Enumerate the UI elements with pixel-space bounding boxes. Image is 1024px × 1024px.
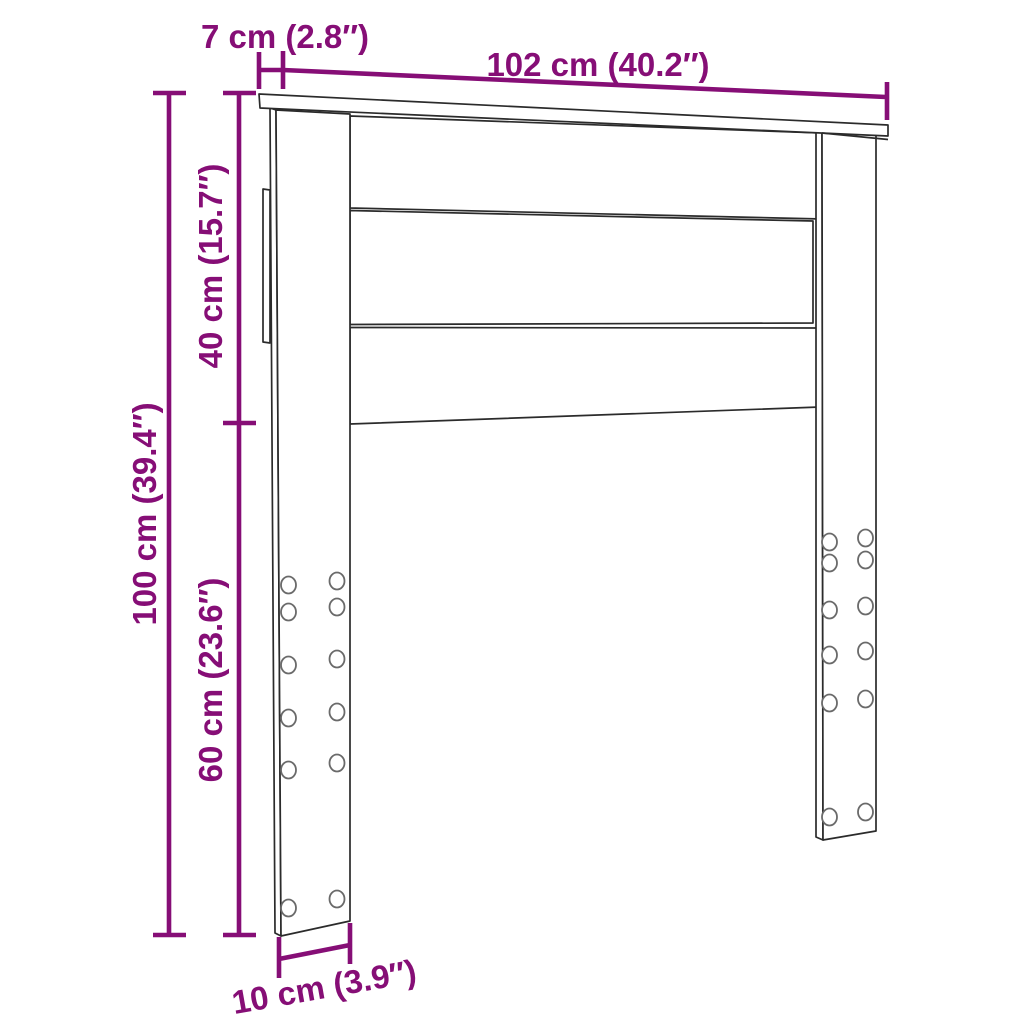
- dimension-label-leg-height: 60 cm (23.6″): [192, 578, 229, 783]
- dimension-label-width: 102 cm (40.2″): [486, 46, 709, 83]
- mounting-hole: [281, 762, 296, 779]
- dimension-label-leg-depth: 10 cm (3.9″): [229, 952, 419, 1021]
- dimension-leg-depth: 10 cm (3.9″): [229, 923, 419, 1021]
- right-leg: [816, 131, 876, 840]
- mounting-hole: [281, 657, 296, 674]
- dimension-shelf-depth-lines: [257, 51, 285, 89]
- mounting-hole: [858, 598, 873, 615]
- mounting-hole: [858, 804, 873, 821]
- dimension-panel-height: 40 cm (15.7″): [192, 93, 256, 423]
- mounting-hole: [822, 602, 837, 619]
- mounting-hole: [281, 604, 296, 621]
- right-leg-front-face: [822, 133, 876, 840]
- dimension-label-panel-height: 40 cm (15.7″): [192, 164, 229, 369]
- mounting-hole: [858, 643, 873, 660]
- slat-top: [350, 116, 822, 219]
- mounting-hole: [281, 577, 296, 594]
- headboard-outline: [259, 94, 888, 936]
- mounting-hole: [858, 530, 873, 547]
- mounting-hole: [281, 710, 296, 727]
- slat-middle: [350, 211, 813, 325]
- headboard-slats: [350, 116, 822, 424]
- mounting-hole: [330, 599, 345, 616]
- left-leg-front-face: [276, 110, 350, 936]
- dimension-leg-height: 60 cm (23.6″): [192, 423, 256, 935]
- wall-rail: [263, 189, 270, 343]
- dimension-label-shelf-depth: 7 cm (2.8″): [201, 18, 369, 55]
- dimension-shelf-depth: 7 cm (2.8″): [201, 18, 369, 89]
- mounting-hole: [281, 900, 296, 917]
- mounting-hole: [822, 647, 837, 664]
- mounting-hole: [858, 552, 873, 569]
- mounting-hole: [330, 651, 345, 668]
- mounting-hole: [822, 555, 837, 572]
- diagram-page: 7 cm (2.8″) 102 cm (40.2″) 100 cm (39.4″…: [0, 0, 1024, 1024]
- mounting-hole: [822, 534, 837, 551]
- dimension-total-height: 100 cm (39.4″): [126, 93, 186, 935]
- mounting-hole: [330, 891, 345, 908]
- mounting-hole: [330, 704, 345, 721]
- mounting-hole: [330, 573, 345, 590]
- mounting-hole: [858, 691, 873, 708]
- mounting-hole: [330, 755, 345, 772]
- left-leg: [270, 108, 350, 936]
- dimension-label-total-height: 100 cm (39.4″): [126, 402, 163, 625]
- slat-bottom: [350, 328, 820, 425]
- mounting-hole: [822, 809, 837, 826]
- mounting-hole: [822, 695, 837, 712]
- headboard-dimension-diagram: 7 cm (2.8″) 102 cm (40.2″) 100 cm (39.4″…: [0, 0, 1024, 1024]
